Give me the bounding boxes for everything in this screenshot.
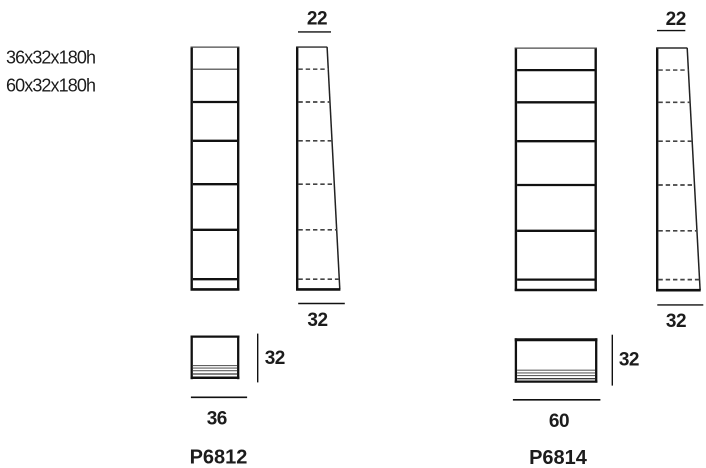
- svg-text:36x32x180h: 36x32x180h: [6, 47, 95, 67]
- svg-text:22: 22: [307, 8, 327, 29]
- svg-text:60x32x180h: 60x32x180h: [6, 75, 95, 95]
- svg-text:32: 32: [265, 348, 285, 369]
- svg-text:P6812: P6812: [190, 447, 248, 468]
- svg-text:P6814: P6814: [529, 447, 588, 468]
- svg-text:36: 36: [207, 409, 227, 430]
- svg-text:32: 32: [307, 310, 327, 331]
- svg-text:22: 22: [666, 9, 686, 30]
- svg-text:32: 32: [666, 311, 686, 332]
- svg-text:32: 32: [619, 350, 639, 371]
- svg-text:60: 60: [549, 411, 569, 432]
